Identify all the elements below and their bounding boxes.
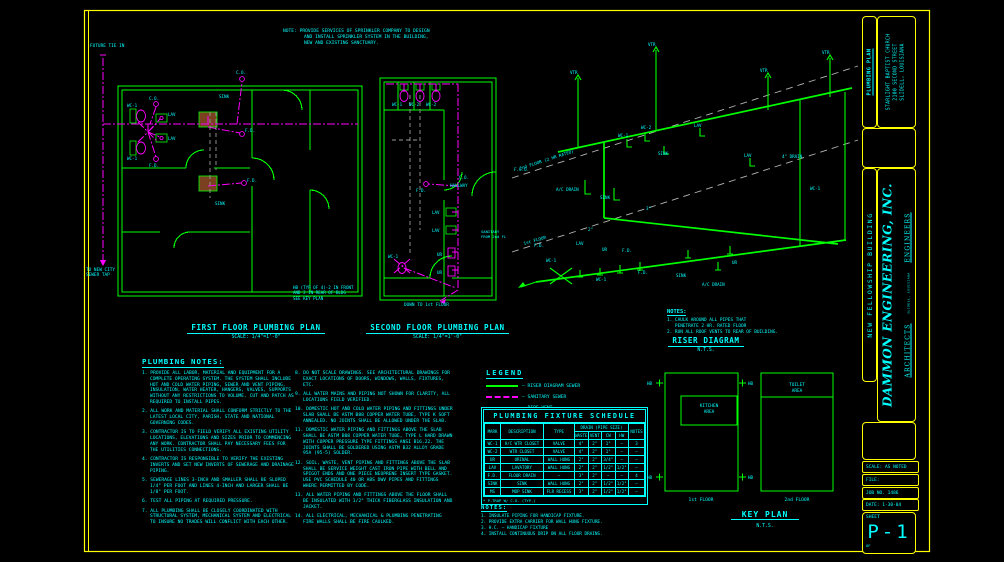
riser-label: VTR [760,68,768,73]
schedule-cell: URINAL [501,456,544,464]
key-plan: HB HB HB HB KITCHEN AREA TOILET AREA 1st… [647,373,833,529]
schedule-cell: — [615,456,629,464]
col-header-description: DESCRIPTION [501,424,544,440]
plan-label: C.O. [149,96,159,101]
col-header-mark: MARK [485,424,501,440]
schedule-body: WC-1H/C WTR CLOSETVALVE4"2"1"—3WC-2WTR C… [485,440,645,496]
second-floor-title: SECOND FLOOR PLUMBING PLAN [366,323,508,334]
list-item: 4. INSTALL CONTINUOUS DRIP ON ALL FLOOR … [481,532,603,538]
riser-label: 4" DRAIN [782,154,803,159]
schedule-cell: 2" [575,456,589,464]
titleblock-sheet-title-box: PLUMBING PLAN [862,16,877,128]
second-floor-title-block: SECOND FLOOR PLUMBING PLAN SCALE: 1/4"=1… [345,315,530,340]
second-floor-plan: WC-1 WC-2 WC-2 F.D. LAV LAV UR UR WC-1 C… [380,78,507,308]
plan-label: WC-2 [409,102,420,107]
plan-label: C.O. [236,70,246,75]
list-item: 9. ALL WATER MAINS AND PIPING NOT SHOWN … [295,392,455,404]
riser-label: F.D. [534,243,544,248]
wc-tank [130,109,136,123]
sheet-number-box: SHEET P-1 OF [862,512,916,554]
schedule-cell: 1/2" [602,488,616,496]
riser-label: WC-2 [641,125,652,130]
col-header-notes: NOTES [629,424,645,440]
vent-lines [392,95,420,255]
schedule-cell: 2" [588,480,602,488]
schedule-cell: — [615,448,629,456]
schedule-cell: — [544,472,575,480]
schedule-cell: 1/2" [602,464,616,472]
schedule-row: WC-1H/C WTR CLOSETVALVE4"2"1"—3 [485,440,645,448]
list-item: 10. DOMESTIC HOT AND COLD WATER PIPING A… [295,407,455,424]
riser-label: VTR [648,42,656,47]
firm-name: DAMMON ENGINEERING, INC. [880,183,894,407]
list-item: 13. ALL WATER PIPING AND FITTINGS ABOVE … [295,493,455,510]
file-field: FILE: [862,474,919,486]
plan-label: SINK [215,201,226,206]
plumbing-notes-title: PLUMBING NOTES: [142,357,224,368]
schedule-cell: WALL HUNG [544,464,575,472]
hb-label: HB [647,381,653,386]
titleblock-building-box: NEW FELLOWSHIP BUILDING [862,168,877,382]
schedule-cell: SINK [501,480,544,488]
area-label: TOILET [789,382,805,388]
titleblock-empty-box-2 [862,422,916,460]
plan-label: LAV [168,112,176,117]
scale-field: SCALE: AS NOTED [862,461,919,473]
schedule-cell: 4" [575,440,589,448]
schedule-row: WC-2WTR CLOSETVALVE4"2"1"—— [485,448,645,456]
hose-bibb-note: HB (TYP OF 4)-2 IN FRONTAND 2 IN REAR OF… [293,285,365,301]
riser-label: LAV [576,241,584,246]
schedule-cell: SINK [485,480,501,488]
plan-label: C.O. [459,175,469,180]
titleblock-empty-box-1 [862,128,916,168]
schedule-cell: VALVE [544,448,575,456]
plumbing-fixture-schedule: PLUMBING FIXTURE SCHEDULE MARK DESCRIPTI… [481,407,648,505]
floor-drain [240,132,245,137]
schedule-row: URURINALWALL HUNG2"2"3/4"—— [485,456,645,464]
list-item: 6. TEST ALL PIPING AT REQUIRED PRESSURE. [142,499,294,505]
riser-label: WC-1 [810,186,821,191]
schedule-cell: 1/2" [602,480,616,488]
list-item: 11. DOMESTIC WATER PIPING AND FITTINGS A… [295,428,455,457]
first-floor-scale: SCALE: 1/4"=1'-0" [150,335,362,340]
schedule-cell: H/C WTR CLOSET [501,440,544,448]
legend-label: SANITARY SEWER [528,395,567,400]
schedule-cell: WC-1 [485,440,501,448]
fixture-schedule-notes: NOTES: 1. INSULATE PIPING FOR HANDICAP F… [481,494,603,538]
plumbing-plan-sheet: { "sheet": { "background": "#000000", "b… [0,0,1004,562]
ur-fixture [448,266,455,276]
schedule-cell: 1/2" [615,464,629,472]
plan-label: WC-1 [392,102,403,107]
plan-label: WC-1 [388,254,399,259]
schedule-cell: 2" [588,464,602,472]
plan-label: SEWER TAP [86,272,110,278]
riser-scale: N.T.S. [650,348,762,353]
col-header-hw: HW [615,432,629,440]
wc-fixture [137,142,146,154]
wall-lines [380,78,496,300]
project-city: SLIDELL, LOUISIANA [900,34,907,111]
list-item: 14. ALL ELECTRICAL, MECHANICAL & PLUMBIN… [295,514,455,526]
plan-label: DOWN TO 1st FLOOR [404,302,449,308]
schedule-cell: WTR CLOSET [501,448,544,456]
plan-label: LAV [432,228,440,233]
schedule-cell: 4" [575,448,589,456]
schedule-row: F.D.FLOOR DRAIN—3"2"——4 [485,472,645,480]
job-number-value: JOB NO. 1486 [866,491,899,496]
schedule-row: SINKSINKWALL HUNG2"2"1/2"1/2"— [485,480,645,488]
list-item: 3. CONTRACTOR IS TO FIELD VERIFY ALL EXI… [142,430,294,453]
plan-label: FROM 2nd FL [481,234,507,239]
plan-label: WC-2 [426,102,437,107]
notes-title: NOTES: [481,505,507,512]
wc-fixture [400,91,408,102]
floor-drain [424,182,429,187]
floor-label: 2nd FLOOR [785,497,810,503]
floor-drain [154,157,159,162]
area-label: AREA [792,388,803,394]
riser-label: WC-1 [546,258,557,263]
wall-lines [118,86,362,296]
key-plan-scale: N.T.S. [756,523,773,529]
plan-label: UR [437,252,443,257]
schedule-cell: — [629,456,645,464]
sprinkler-note: NOTE: PROVIDE SERVICES OF SPRINKLER COMP… [283,29,430,47]
riser-label: A/C DRAIN [556,187,579,192]
legend-item: — RISER DIAGRAM SEWER [486,384,580,389]
sheet-label: SHEET [866,515,915,520]
riser-title-block: RISER DIAGRAM N.T.S. [650,328,762,353]
list-item: 8. DO NOT SCALE DRAWINGS. SEE ARCHITECTU… [295,371,455,388]
wc-fixture [137,110,146,122]
cleanout [154,102,159,107]
riser-title: RISER DIAGRAM [668,336,743,347]
riser-label: LAV [744,153,752,158]
schedule-cell: WC-2 [485,448,501,456]
schedule-cell: 4 [629,472,645,480]
schedule-cell: LAVATORY [501,464,544,472]
hb-markers [656,380,746,481]
schedule-cell: 2" [575,464,589,472]
date-field: DATE: 1-30-04 [862,499,919,511]
project-name: STARLIGHT BAPTIST CHURCH [886,34,893,111]
col-header-cw: CW [602,432,616,440]
schedule-cell: 2" [588,440,602,448]
first-floor-plan: FUTURE TIE IN TO NEW CITY SEWER TAP C.O.… [86,43,362,296]
plan-label: UR [437,270,443,275]
legend-title: LEGEND [486,369,523,379]
firm-type-architects: ARCHITECTS [904,323,911,377]
floor-lines [512,66,858,252]
schedule-cell: 2" [575,480,589,488]
schedule-cell: 3 [629,440,645,448]
col-header-vent: VENT [588,432,602,440]
schedule-cell: VALVE [544,440,575,448]
riser-label: WC-1 [596,277,607,282]
list-item: 7. ALL PLUMBING SHALL BE CLOSELY COORDIN… [142,509,294,526]
lav-drain [160,136,163,139]
schedule-cell: — [602,472,616,480]
schedule-cell: — [629,448,645,456]
project-address: 2100 SECOND STREET [893,34,900,111]
titleblock-project-box: STARLIGHT BAPTIST CHURCH 2100 SECOND STR… [877,16,916,128]
riser-notes-title: NOTES: [667,309,686,316]
schedule-cell: 2" [588,456,602,464]
riser-label: VTR [822,50,830,55]
sheet-number: P-1 [863,521,915,543]
schedule-cell: 3" [575,472,589,480]
file-value: FILE: [866,478,880,483]
sewer-mains [536,88,852,282]
schedule-cell: 1" [602,440,616,448]
hb-label: HB [748,381,754,386]
notes-list: 1. INSULATE PIPING FOR HANDICAP FIXTURE.… [481,514,603,538]
riser-label: F.C.O. [514,167,529,172]
schedule-cell: — [629,464,645,472]
firm-address: SLIDELL, LOUISIANA [906,272,910,314]
schedule-cell: WALL HUNG [544,480,575,488]
plan-label: WC-1 [127,156,138,161]
schedule-cell: 3/4" [602,456,616,464]
wc-tank [130,141,136,155]
sheet-of-label: OF [866,543,915,548]
plan-label: WC-1 [127,103,138,108]
plan-label: LAV [432,210,440,215]
riser-sewer-line-sample [486,385,518,387]
col-header-pipe-group: DRAIN (PIPE SIZE) [575,424,629,432]
riser-label: A/C DRAIN [702,282,725,287]
schedule-frame: PLUMBING FIXTURE SCHEDULE MARK DESCRIPTI… [483,409,646,497]
risers-and-stacks [575,47,845,246]
plan-label: FUTURE TIE IN [90,43,125,49]
sheet-title: PLUMBING PLAN [866,48,873,95]
schedule-cell: — [629,488,645,496]
col-header-waste: WASTE [575,432,589,440]
schedule-cell: WALL HUNG [544,456,575,464]
riser-label: F.D. [638,270,648,275]
riser-diagram: 2nd FLOOR (2 HR RATED) 1st FLOOR VTR VTR… [512,42,858,288]
list-item: 4. CONTRACTOR IS RESPONSIBLE TO VERIFY T… [142,457,294,474]
riser-label: SINK [600,195,611,200]
riser-label: F.D. [622,248,632,253]
sink-fixture [199,176,217,191]
date-value: DATE: 1-30-04 [866,503,901,508]
schedule-cell: LAV [485,464,501,472]
flow-arrow [100,260,106,266]
schedule-cell: F.D. [485,472,501,480]
legend-label: RISER DIAGRAM SEWER [528,384,581,389]
first-floor-title: FIRST FLOOR PLUMBING PLAN [187,323,324,334]
key-plan-title: KEY PLAN [742,510,789,519]
area-label: KITCHEN [700,403,719,409]
plan-label: F.D. [149,163,159,168]
plumbing-notes-column-1: 1. PROVIDE ALL LABOR, MATERIAL AND EQUIP… [142,371,294,530]
cleanout [240,77,245,82]
list-item: 2. ALL WORK AND MATERIAL SHALL CONFORM S… [142,409,294,426]
lav-drain [160,116,163,119]
plan-label: F.D. [245,128,255,133]
schedule-cell: 2" [588,448,602,456]
plumbing-notes-column-2: 8. DO NOT SCALE DRAWINGS. SEE ARCHITECTU… [295,371,455,530]
list-item: 1. PROVIDE ALL LABOR, MATERIAL AND EQUIP… [142,371,294,406]
second-floor-scale: SCALE: 1/4"=1'-0" [345,335,530,340]
riser-label: SINK [658,151,669,156]
riser-label: WC-1 [618,133,629,138]
schedule-title: PLUMBING FIXTURE SCHEDULE [484,410,645,423]
col-header-type: TYPE [544,424,575,440]
list-item: 12. SOIL, WASTE, VENT PIPING AND FITTING… [295,461,455,490]
schedule-cell: — [615,472,629,480]
riser-label: SINK [676,273,687,278]
riser-label: UR [602,247,608,252]
floor-drain [242,181,247,186]
building-name: NEW FELLOWSHIP BUILDING [866,212,874,337]
first-floor-title-block: FIRST FLOOR PLUMBING PLAN SCALE: 1/4"=1'… [150,315,362,340]
riser-label: 2" [588,227,593,232]
fixture-hooks [521,128,755,287]
list-item: 5. SEWERAGE LINES 3-INCH AND SMALLER SHA… [142,478,294,495]
titleblock-firm-box: DAMMON ENGINEERING, INC. ARCHITECTS SLID… [877,168,916,422]
schedule-header: MARK DESCRIPTION TYPE DRAIN (PIPE SIZE) … [485,424,645,440]
firm-type-engineers: ENGINEERS [904,212,911,262]
schedule-cell: 1" [602,448,616,456]
firm-info: DAMMON ENGINEERING, INC. ARCHITECTS SLID… [880,183,913,407]
plan-label: SINK [219,94,230,99]
schedule-cell: UR [485,456,501,464]
note-line: NEW AND EXISTING SANCTUARY. [304,41,430,47]
lav-fixture [156,114,167,122]
wc-fixture [432,91,440,102]
plan-label: HALLWAY [450,183,468,188]
legend-item: — SANITARY SEWER [486,395,580,400]
riser-label: UR [732,260,738,265]
schedule-table: MARK DESCRIPTION TYPE DRAIN (PIPE SIZE) … [484,423,645,496]
schedule-row: LAVLAVATORYWALL HUNG2"2"1/2"1/2"— [485,464,645,472]
list-item: SEE KEY PLAN [293,296,365,301]
schedule-cell: FLOOR DRAIN [501,472,544,480]
riser-label: LAV [694,123,702,128]
schedule-cell: — [615,440,629,448]
hb-label: HB [748,475,754,480]
schedule-cell: 1/2" [615,480,629,488]
plan-label: LAV [168,136,176,141]
riser-label: VTR [570,70,578,75]
plan-label: F.D. [247,178,257,183]
plan-label: F.D. [416,188,426,193]
area-label: AREA [704,409,715,415]
schedule-cell: 1/2" [615,488,629,496]
schedule-cell: 2" [588,472,602,480]
schedule-cell: — [629,480,645,488]
lav-fixture [156,134,167,142]
key-plan-outlines [665,373,833,491]
project-info: STARLIGHT BAPTIST CHURCH 2100 SECOND STR… [886,34,907,111]
scale-value: SCALE: AS NOTED [866,465,907,470]
floor-label: 1st FLOOR [689,497,714,503]
job-number-field: JOB NO. 1486 [862,487,919,499]
sanitary-sewer-line-sample [486,396,518,398]
riser-label: 3" [646,206,651,211]
